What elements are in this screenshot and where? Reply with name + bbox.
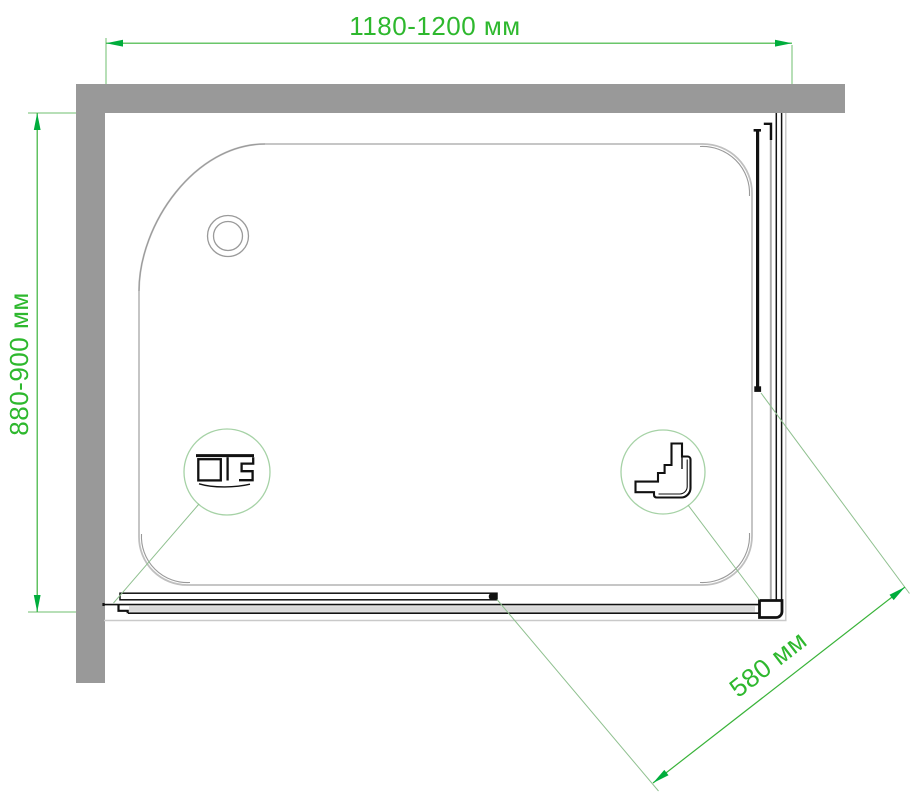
- technical-drawing: 1180-1200 мм 880-900 мм 580 мм: [0, 0, 921, 800]
- depth-dimension-label: 880-900 мм: [6, 292, 32, 435]
- tray-outline: [139, 144, 752, 585]
- tray-chamfer-corner: [139, 144, 265, 291]
- depth-arrow-bottom: [34, 595, 41, 612]
- bottom-rail-fill: [129, 606, 755, 612]
- right-door-bottom-cap: [754, 386, 761, 392]
- bottom-door-end-cap: [489, 593, 498, 600]
- shower-tray: [139, 144, 752, 585]
- right-door-assembly: [754, 113, 782, 618]
- width-arrow-right: [775, 40, 792, 47]
- profile2-outline: [636, 444, 691, 498]
- entry-extension-right: [761, 393, 910, 594]
- bottom-sliding-door-panel: [120, 593, 497, 600]
- profile1-hook: [239, 457, 253, 480]
- wall-profile-section-icon: [196, 456, 254, 487]
- right-rail-hook-profile: [764, 124, 771, 140]
- profile1-box: [198, 459, 221, 480]
- tray-corner-bottom-left: [141, 534, 190, 583]
- frame-outer-edge: [104, 113, 786, 621]
- drain-hole-inner: [214, 222, 243, 251]
- entry-extension-left: [497, 600, 659, 792]
- corner-connector-profile: [760, 601, 783, 618]
- dimension-entry: [497, 393, 910, 791]
- width-arrow-left: [106, 40, 123, 47]
- depth-arrow-top: [34, 113, 41, 130]
- drawing-canvas: [0, 0, 921, 800]
- profile1-gasket: [199, 484, 250, 487]
- dimension-depth: [28, 113, 76, 612]
- detail-left-leader-line: [114, 504, 200, 603]
- dimension-width: [106, 38, 792, 84]
- bottom-door-assembly: [103, 593, 759, 613]
- tray-corner-bottom-right: [700, 533, 750, 583]
- tray-corner-top-right: [700, 146, 750, 196]
- width-dimension-label: 1180-1200 мм: [349, 13, 520, 39]
- detail-callouts: [114, 429, 760, 603]
- corner-connector-section-icon: [636, 444, 691, 498]
